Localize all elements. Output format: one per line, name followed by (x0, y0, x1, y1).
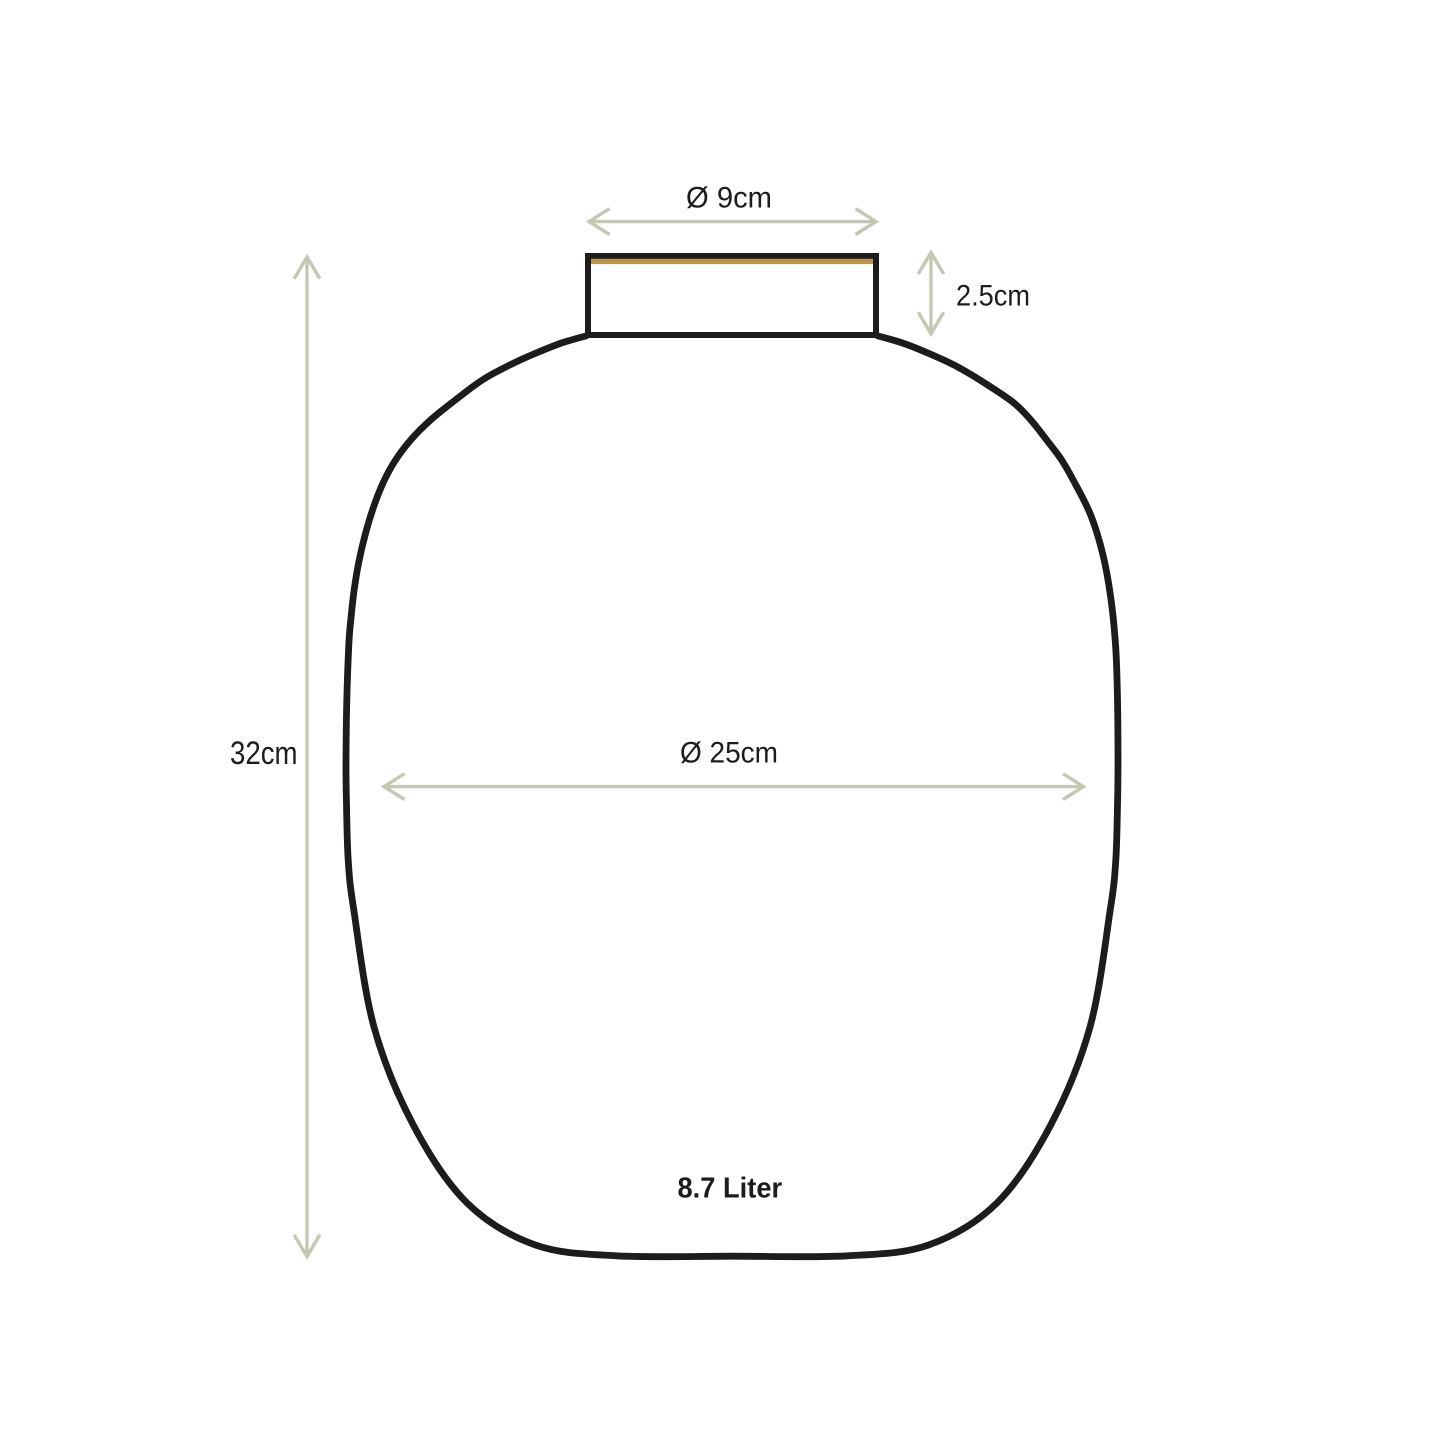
svg-text:8.7 Liter: 8.7 Liter (678, 1173, 783, 1205)
svg-text:Ø 25cm: Ø 25cm (680, 737, 778, 770)
svg-text:2.5cm: 2.5cm (956, 280, 1030, 313)
svg-text:32cm: 32cm (230, 735, 298, 771)
svg-text:Ø 9cm: Ø 9cm (686, 182, 772, 215)
